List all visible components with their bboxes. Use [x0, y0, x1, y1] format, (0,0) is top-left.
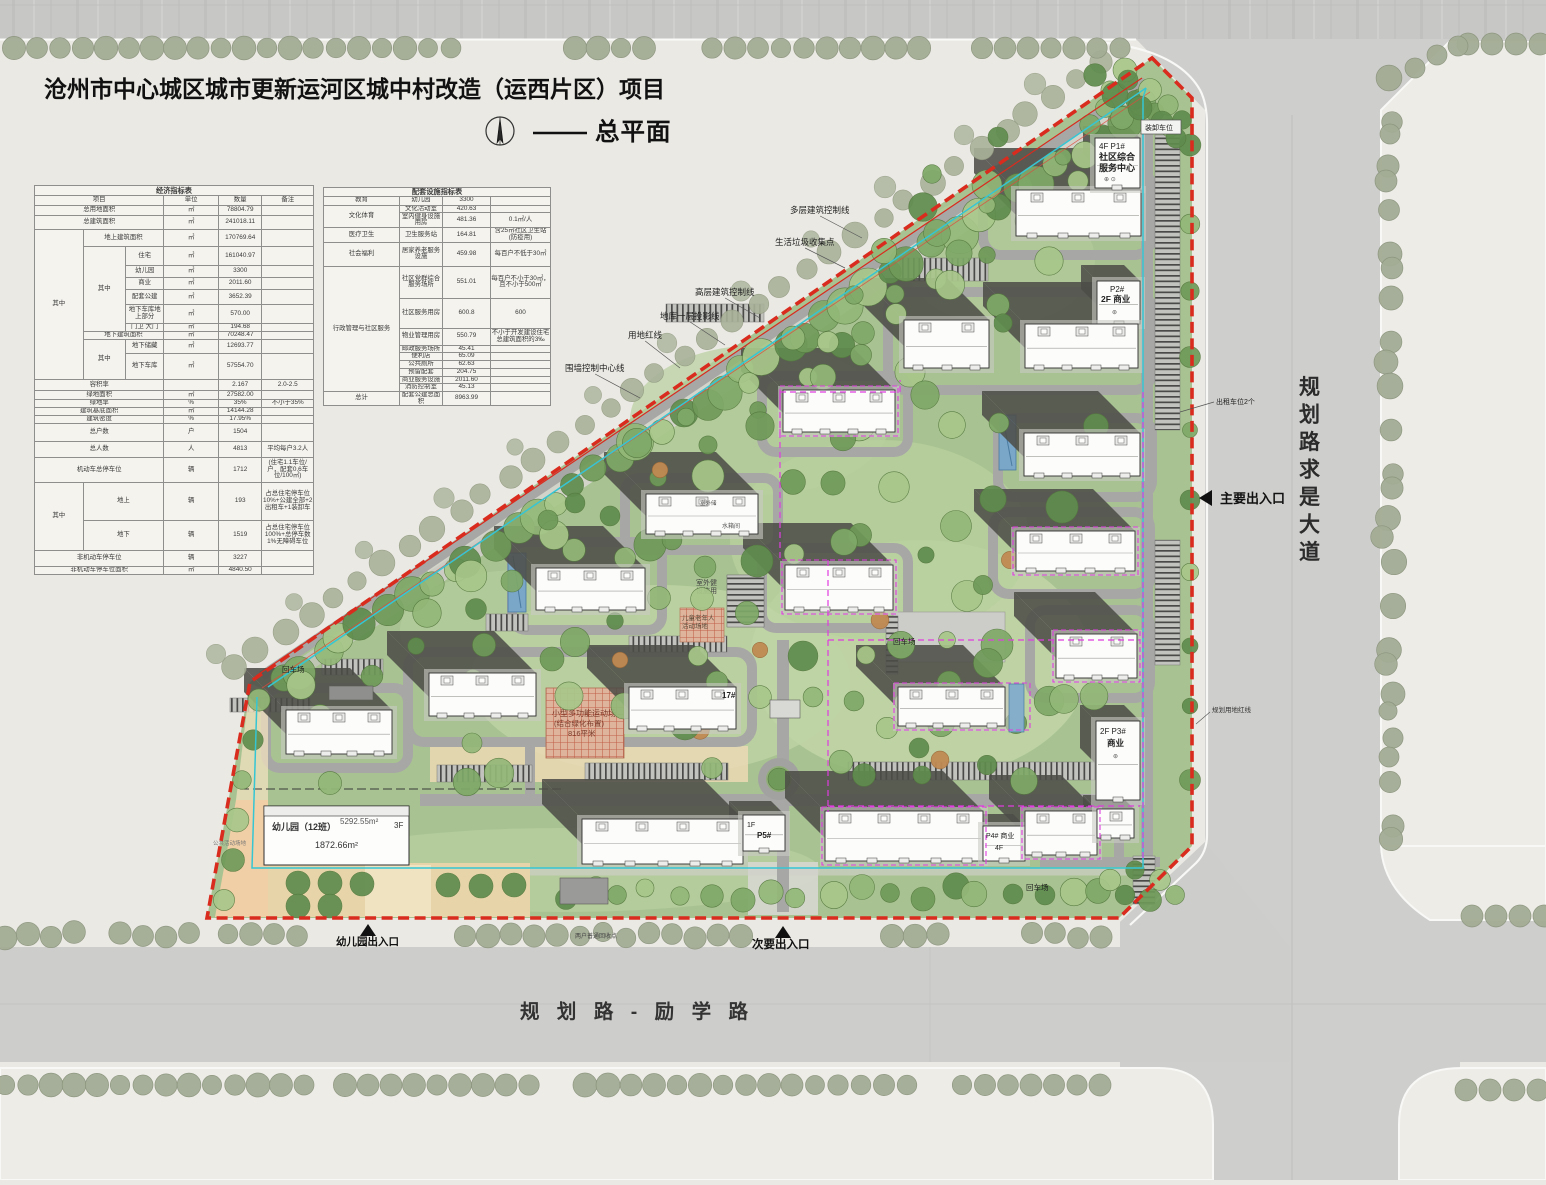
svg-text:⊛: ⊛ [1112, 310, 1117, 316]
svg-text:17#: 17# [722, 691, 736, 700]
svg-text:儿童老年人: 儿童老年人 [682, 613, 715, 622]
svg-text:5292.55m²: 5292.55m² [340, 817, 379, 826]
svg-text:水箱间: 水箱间 [722, 522, 740, 530]
svg-text:P4# 商业: P4# 商业 [986, 831, 1014, 840]
svg-text:地库一层投影线: 地库一层投影线 [660, 311, 720, 321]
svg-text:总平面: 总平面 [595, 118, 672, 146]
svg-text:社区综合: 社区综合 [1098, 151, 1136, 162]
svg-text:公共活动场地: 公共活动场地 [213, 839, 247, 847]
svg-text:商业: 商业 [1107, 738, 1125, 748]
svg-text:⊕ ⊙: ⊕ ⊙ [1104, 177, 1116, 183]
svg-text:主要出入口: 主要出入口 [1220, 491, 1285, 506]
svg-text:多层建筑控制线: 多层建筑控制线 [790, 205, 850, 215]
svg-text:活动场地: 活动场地 [682, 621, 709, 630]
svg-text:大: 大 [1299, 514, 1320, 537]
svg-text:服务中心: 服务中心 [1099, 162, 1135, 173]
svg-text:回车场: 回车场 [893, 636, 916, 646]
svg-text:1F: 1F [747, 822, 755, 829]
svg-text:出租车位2个: 出租车位2个 [1216, 397, 1255, 406]
svg-text:(结合绿化布置): (结合绿化布置) [554, 718, 604, 728]
svg-text:高层建筑控制线: 高层建筑控制线 [695, 287, 755, 297]
svg-text:室外储: 室外储 [700, 499, 717, 507]
svg-text:规 划 路 - 励 学 路: 规 划 路 - 励 学 路 [520, 1000, 754, 1023]
svg-text:回车场: 回车场 [1026, 882, 1049, 892]
svg-text:围墙控制中心线: 围墙控制中心线 [565, 363, 625, 373]
svg-text:P2#: P2# [1110, 285, 1125, 294]
svg-text:室外健: 室外健 [696, 578, 717, 587]
svg-text:1872.66m²: 1872.66m² [315, 840, 358, 850]
svg-text:⊛: ⊛ [1113, 754, 1118, 760]
svg-text:回车场: 回车场 [282, 664, 305, 674]
svg-text:规划用地红线: 规划用地红线 [1212, 705, 1252, 714]
svg-text:是: 是 [1299, 486, 1320, 509]
svg-text:P5#: P5# [757, 831, 772, 840]
svg-text:4F P1#: 4F P1# [1099, 142, 1125, 151]
svg-text:2F 商业: 2F 商业 [1101, 294, 1131, 304]
svg-text:装卸车位: 装卸车位 [1145, 123, 1173, 132]
svg-text:幼儿园出入口: 幼儿园出入口 [336, 935, 399, 948]
svg-text:4F: 4F [995, 845, 1003, 852]
svg-text:幼儿园（12班）: 幼儿园（12班） [272, 821, 336, 832]
svg-text:816平米: 816平米 [568, 728, 596, 738]
svg-text:道: 道 [1299, 540, 1320, 564]
svg-text:划: 划 [1299, 404, 1320, 427]
svg-text:规: 规 [1299, 376, 1320, 399]
svg-text:生活垃圾收集点: 生活垃圾收集点 [775, 237, 835, 247]
svg-text:3F: 3F [394, 821, 403, 830]
svg-text:2F P3#: 2F P3# [1100, 727, 1126, 736]
svg-text:沧州市中心城区城市更新运河区城中村改造（运西片区）项目: 沧州市中心城区城市更新运河区城中村改造（运西片区）项目 [44, 76, 665, 102]
svg-text:路: 路 [1299, 430, 1321, 454]
svg-text:用地红线: 用地红线 [628, 330, 663, 340]
svg-text:次要出入口: 次要出入口 [752, 937, 810, 951]
svg-text:小型多功能运动场: 小型多功能运动场 [552, 708, 616, 718]
svg-text:两户普通回收点: 两户普通回收点 [575, 932, 617, 940]
svg-text:求: 求 [1299, 459, 1320, 482]
